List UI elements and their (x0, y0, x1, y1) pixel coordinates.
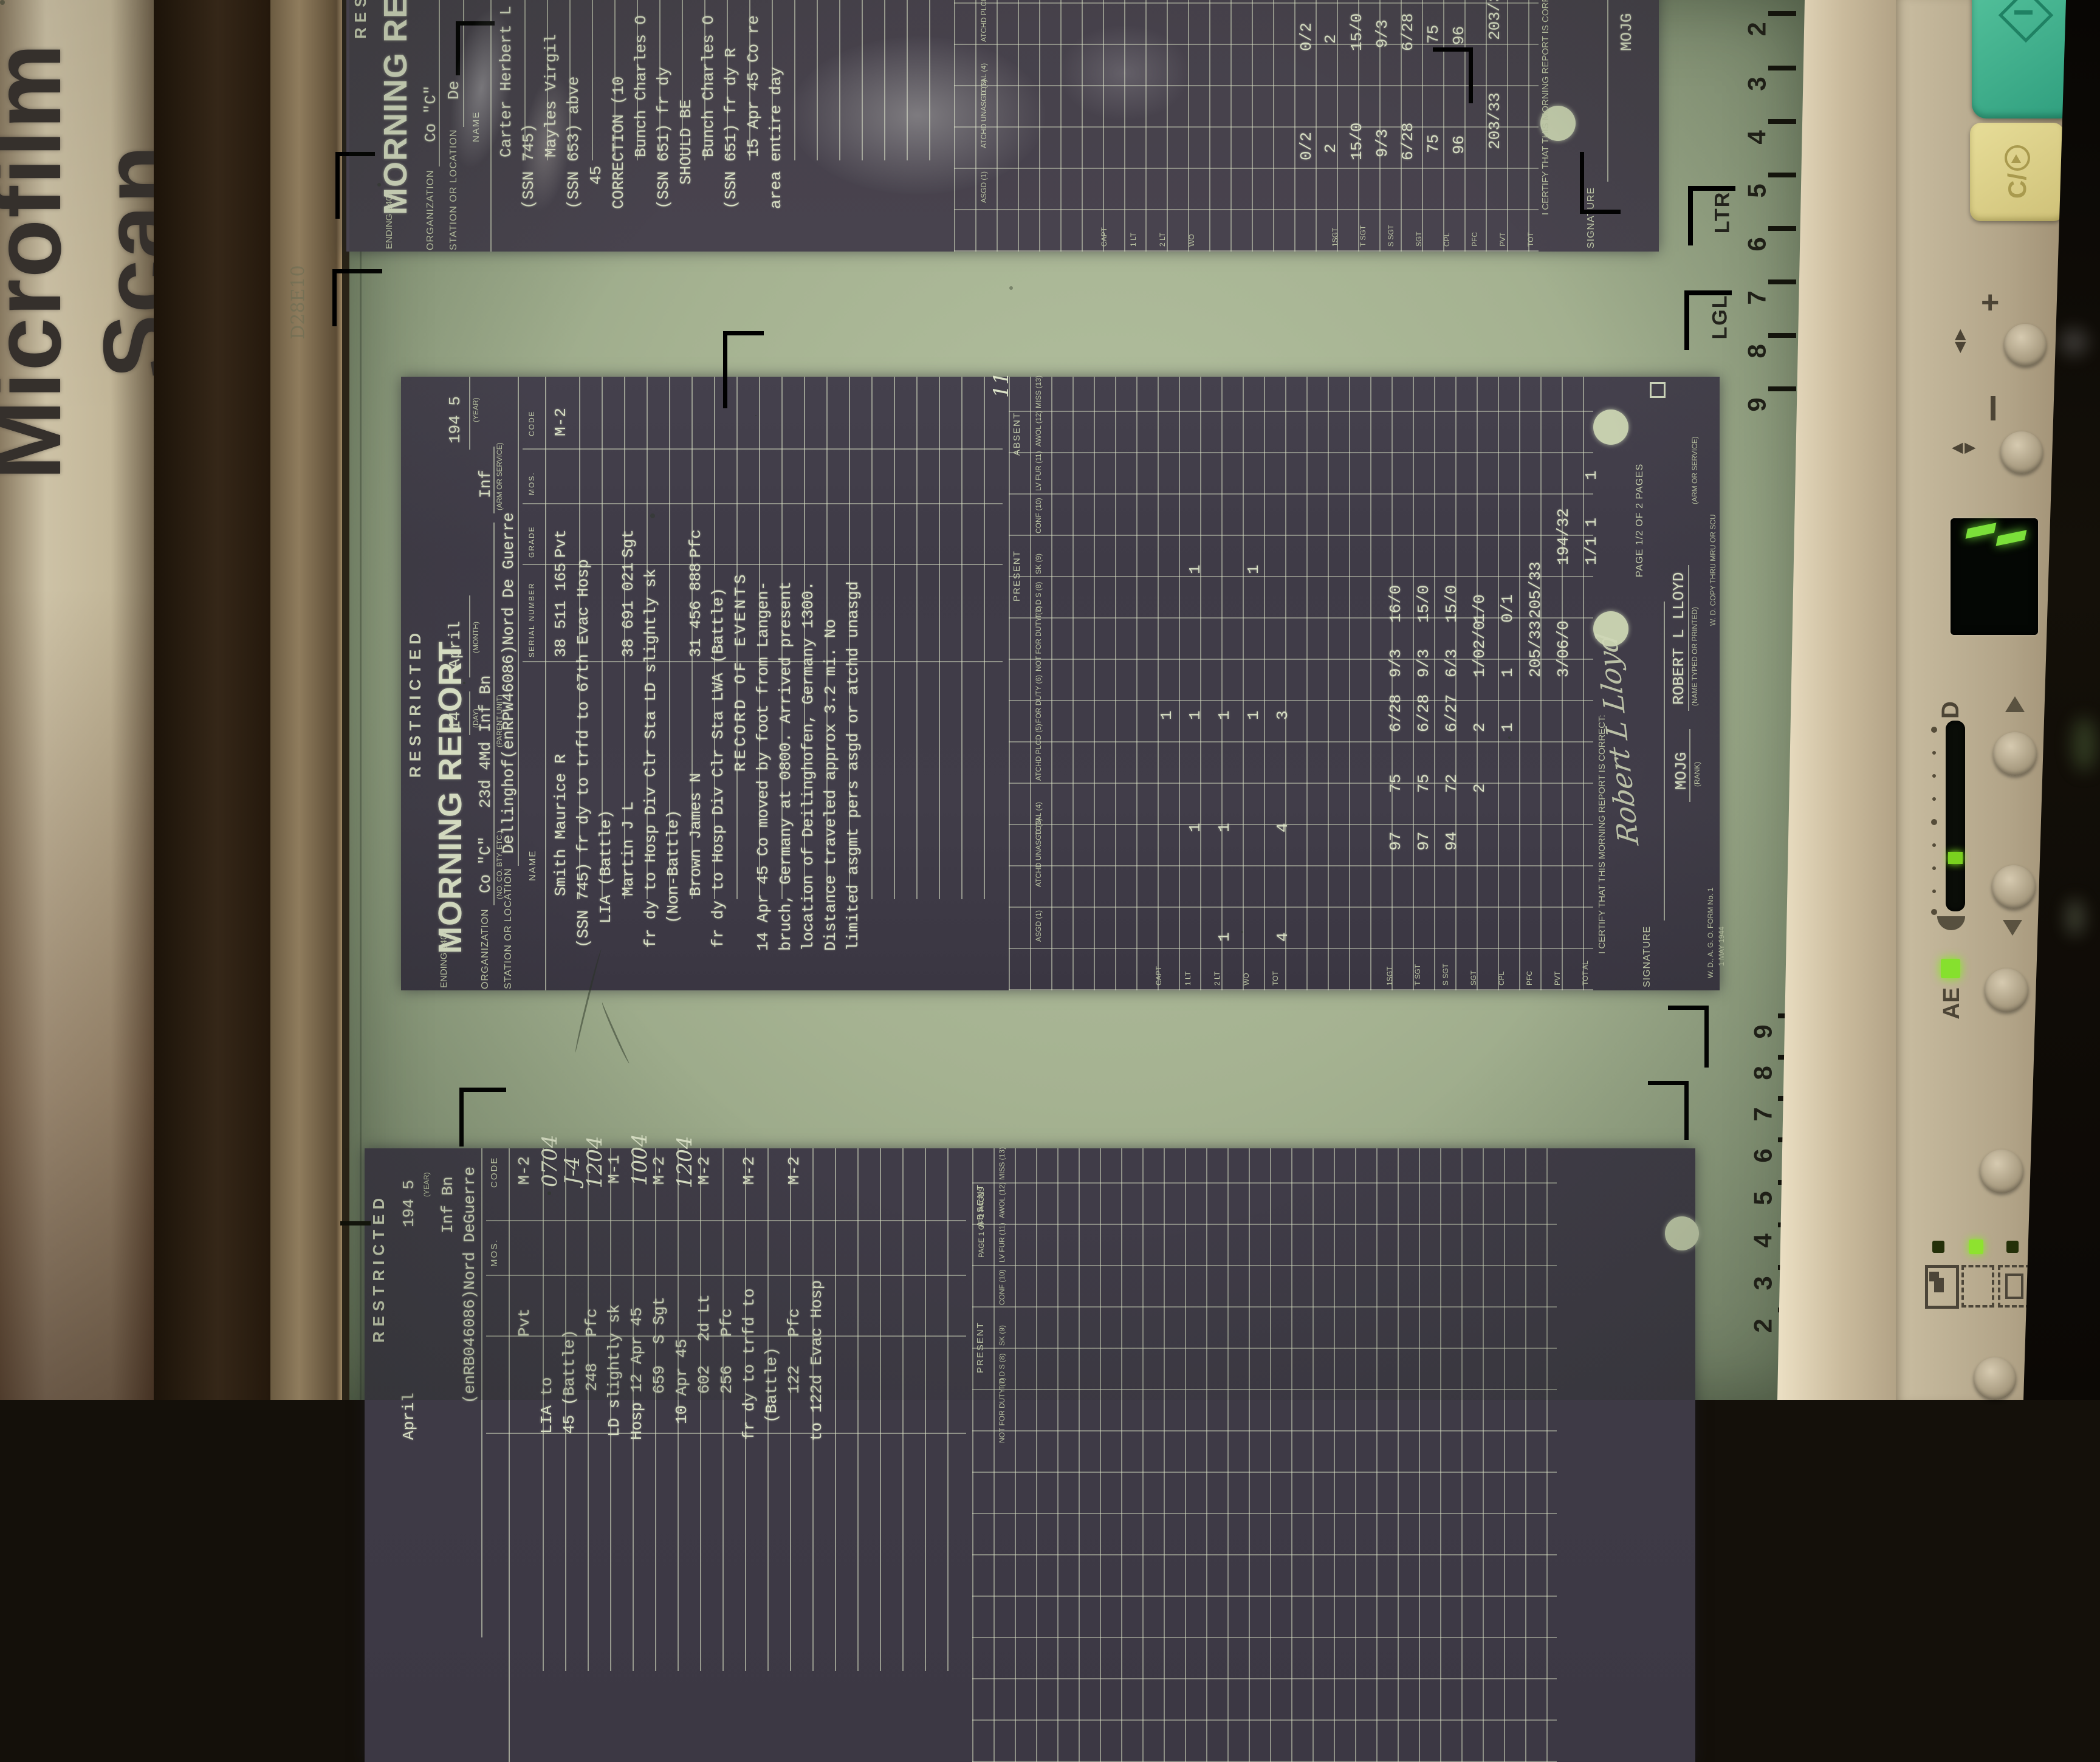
punch-hole (1665, 1216, 1699, 1250)
mos-column-header: MOS. (527, 471, 536, 495)
ae-button[interactable] (1985, 968, 2028, 1012)
rank-value: MOJG (1672, 752, 1690, 790)
organization-unit: Co "C" (476, 836, 495, 893)
name-column-header: NAME (527, 850, 538, 881)
mode-led-center (2006, 1241, 2019, 1253)
rank-value: MOJG (1618, 13, 1636, 51)
form-checkbox (1650, 382, 1666, 398)
code-column-header: CODE (527, 410, 536, 436)
organization-parent: 23d 4Md Inf Bn (476, 676, 495, 808)
event-line: Distance traveled approx 3.2 mi. No (822, 619, 840, 951)
density-scale[interactable] (1946, 721, 1965, 911)
event-line: location of Deilinghofen, Germany 1300. (799, 581, 817, 951)
density-label: D (1937, 701, 1964, 719)
zoom-out-label (1991, 396, 1995, 420)
start-icon-dash (2014, 10, 2033, 15)
start-scan-button[interactable] (1972, 0, 2074, 118)
mode-led-frame (1969, 1239, 1983, 1254)
zoom-in-button[interactable] (2004, 324, 2047, 366)
name-typed-sublabel: (NAME TYPED OR PRINTED) (1690, 607, 1699, 706)
density-scale-dots (1931, 727, 1937, 733)
arm-service-sublabel: (ARM OR SERVICE) (1690, 436, 1699, 504)
crop-mark (1668, 1006, 1709, 1068)
exposure-counter-display (1951, 518, 2038, 635)
crop-mark (456, 21, 495, 75)
density-down-button[interactable] (1992, 865, 2036, 909)
document-title: MORNING REPORT (431, 641, 469, 954)
strength-grid (972, 1148, 1557, 1762)
zoom-out-button[interactable] (2000, 431, 2043, 474)
document-bottom: RESTRICTEDApril194 5(YEAR)Inf Bn(enRB046… (365, 1148, 1695, 1762)
density-up-button[interactable] (1993, 732, 2037, 776)
document-center: RESTRICTED ENDING 2400 MORNING REPORT 14… (401, 377, 1720, 990)
classification-stamp: RESTRICTED (406, 628, 425, 778)
background-glint (2066, 899, 2084, 936)
name-typed: ROBERT L LLOYD (1670, 572, 1688, 705)
ending-label: ENDING 2400 (439, 955, 449, 988)
mode-select-button[interactable] (1980, 1150, 2023, 1193)
start-icon (1999, 0, 2054, 43)
punch-hole (1593, 410, 1628, 445)
letter-size-label: LTR (1711, 191, 1734, 234)
signature-label: SIGNATURE (1642, 926, 1653, 987)
form-number: W. D., A. G. O. FORM No. 1 (1706, 888, 1715, 978)
background-glint (2060, 328, 2088, 356)
event-line: 14 Apr 45 Co moved by foot from Langen- (754, 581, 772, 951)
mode-led-auto (1932, 1241, 1944, 1253)
masking-mode-icon-frame (1961, 1265, 1994, 1308)
classification-stamp: RESTRICTED (351, 0, 370, 39)
ending-label: ENDING 2400 (384, 216, 394, 249)
height-adjust-icon: ◀ ▶ (1952, 439, 1975, 456)
crop-mark (1580, 152, 1621, 214)
serial-column-header: SERIAL NUMBER (527, 582, 536, 657)
width-adjust-icon: ◀ ▶ (1951, 331, 1968, 354)
event-line: limited asgmt pers asgd or atchd unasgd (844, 581, 862, 951)
month-sublabel: (MONTH) (472, 622, 480, 653)
strength-grid (1009, 377, 1593, 990)
grade-column-header: GRADE (527, 526, 536, 558)
dust-specks (0, 0, 5, 5)
housing-dark-gap (154, 0, 270, 1400)
crop-mark (1433, 47, 1473, 103)
ae-label: AE (1939, 987, 1965, 1020)
organization-label: ORGANIZATION (480, 908, 491, 989)
org-arm-sublabel: (ARM OR SERVICE) (495, 442, 504, 510)
organization-arm: Inf (476, 470, 495, 498)
legal-size-label: LGL (1708, 295, 1732, 340)
station-label: STATION OR LOCATION (448, 129, 459, 250)
year-sublabel: (YEAR) (472, 397, 480, 422)
crop-mark (335, 152, 375, 219)
name-column-header: NAME (471, 111, 481, 142)
report-day: 14 (446, 711, 464, 730)
led-segment (1966, 523, 1997, 538)
zoom-in-label: + (1981, 284, 1999, 321)
document-title: MORNING REPORT (377, 0, 414, 215)
rank-sublabel: (RANK) (1693, 762, 1701, 787)
pencil-note: D28E10 (288, 265, 309, 339)
ae-indicator-led (1941, 959, 1960, 978)
crop-mark (1648, 1081, 1689, 1140)
crop-mark (723, 331, 764, 408)
clear-stop-button[interactable]: C/ (1970, 123, 2064, 221)
report-month: April (446, 621, 464, 668)
clear-stop-icon: C/ (2003, 145, 2032, 199)
form-date: 1 MAY 1944 (1717, 927, 1726, 966)
density-down-arrow (2003, 920, 2022, 936)
organization-label: ORGANIZATION (425, 170, 436, 250)
housing-edge-strip (270, 0, 342, 1400)
masking-mode-icon-center (1998, 1265, 2031, 1308)
certify-line: I CERTIFY THAT THIS MORNING REPORT IS CO… (1540, 0, 1551, 215)
ruler-mark: 2 (1750, 11, 1811, 60)
event-line: bruch, Germany at 0800. Arrived present (777, 581, 795, 951)
station-label: STATION OR LOCATION (503, 868, 514, 989)
station-value: De (445, 81, 463, 100)
density-indicator-led (1948, 852, 1963, 864)
led-segment (1996, 530, 2027, 546)
report-year: 194 5 (446, 396, 464, 444)
brand-label: Microfilm Scan (0, 0, 131, 595)
masking-mode-icon-auto (1925, 1265, 1959, 1309)
density-up-arrow (2005, 696, 2025, 712)
station-value: Dellinghof(enRPW46086)Nord De Guerre (499, 512, 518, 854)
copy-note: W. D. COPY THRU MRU OR SCU (1709, 514, 1717, 626)
crop-mark (332, 269, 382, 326)
crop-mark (459, 1088, 506, 1147)
crop-mark (340, 1221, 371, 1226)
background-glint (2072, 717, 2096, 772)
organization-unit: Co "C" (422, 85, 440, 142)
record-of-events-header: RECORD OF EVENTS (732, 571, 750, 772)
document-top: RESTRICTED ENDING 2400 MORNING REPORT OR… (346, 0, 1659, 252)
masking-button[interactable] (1974, 1357, 2016, 1400)
ruler-mark: 3 (1750, 66, 1811, 114)
